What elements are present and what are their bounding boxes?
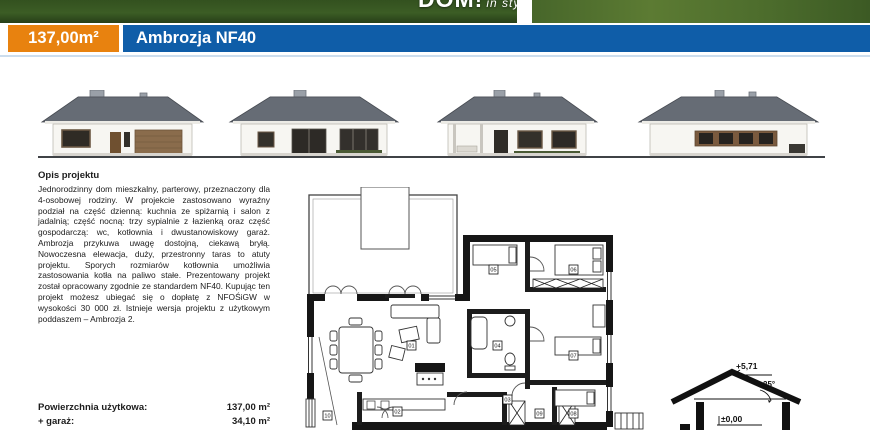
logo-main-text: DOM!: [418, 0, 483, 12]
room-number-03: 03: [504, 398, 510, 404]
usable-area-row: Powierzchnia użytkowa: 137,00 m²: [38, 401, 270, 415]
room-number-08: 08: [570, 412, 576, 418]
description-body: Jednorodzinny dom mieszkalny, parterowy,…: [38, 184, 270, 324]
elevation-drawing-front: [40, 90, 205, 157]
logo-sub-text: in style: [486, 0, 517, 10]
elevation-drawing-side-right: [637, 90, 820, 157]
usable-area-label: Powierzchnia użytkowa:: [38, 401, 147, 415]
elevation-drawing-back: [436, 90, 599, 157]
project-sheet-page: DOM!in style 137,00m² Ambrozja NF40: [0, 0, 870, 430]
floor-level-label: ±0,00: [721, 414, 742, 424]
description-heading: Opis projektu: [38, 170, 270, 181]
garage-area-row: + garaż: 34,10 m²: [38, 415, 270, 429]
project-title: Ambrozja NF40: [136, 29, 256, 48]
header-photo-right: [532, 0, 870, 23]
area-badge-text: 137,00m²: [28, 29, 99, 48]
room-number-01: 01: [408, 344, 414, 350]
elevation-drawing-side-left: [228, 90, 400, 157]
garage-area-label: + garaż:: [38, 415, 74, 429]
roof-angle-label: 25°: [763, 380, 775, 389]
project-description: Opis projektu Jednorodzinny dom mieszkal…: [38, 170, 270, 324]
room-number-06: 06: [570, 268, 576, 274]
area-badge: 137,00m²: [8, 25, 119, 52]
ridge-height-label: +5,71: [736, 361, 758, 371]
floor-plan-drawing: 01 02 03 04 05 06 07 08 09 10: [297, 187, 649, 430]
cross-section-drawing: +5,71 25° ±0,00: [668, 338, 868, 430]
header-photo-left: DOM!in style: [0, 0, 517, 23]
room-number-07: 07: [570, 354, 576, 360]
usable-area-value: 137,00 m²: [227, 401, 270, 415]
room-number-05: 05: [490, 268, 496, 274]
areas-summary: Powierzchnia użytkowa: 137,00 m² + garaż…: [38, 401, 270, 428]
room-number-04: 04: [494, 344, 500, 350]
header-divider: [0, 55, 870, 57]
room-number-10: 10: [324, 414, 330, 420]
project-title-bar: Ambrozja NF40: [123, 25, 870, 52]
room-number-02: 02: [394, 410, 400, 416]
room-number-09: 09: [536, 412, 542, 418]
elevations-ground-line: [38, 156, 825, 158]
garage-area-value: 34,10 m²: [232, 415, 270, 429]
dom-in-style-logo: DOM!in style: [418, 0, 517, 13]
